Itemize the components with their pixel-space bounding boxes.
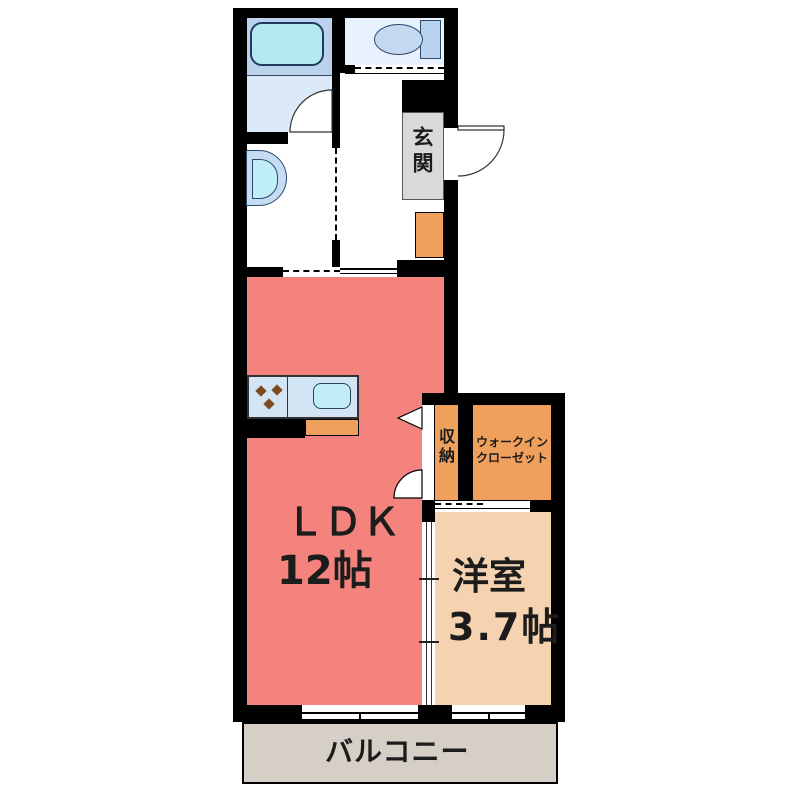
walk-in-closet-label: ウォークインクローゼット [474,434,550,466]
wall-top [233,8,458,18]
western-balcony-window [452,705,525,722]
wall-closet-top [422,393,565,405]
ldk-size-label: 12帖 [277,551,373,591]
wall-toilet-bottom-stub [345,65,355,74]
storage-door-gap [422,405,435,500]
balcony-label: バルコニー [325,738,469,766]
wall-closet-bottom-left-stub [422,500,435,522]
western-room-label: 洋室 [452,558,526,595]
washroom-ldk-dash [283,270,340,272]
ldk-balcony-window [302,705,418,722]
wall-right-upper [444,8,458,128]
closet-door-dash [435,503,483,505]
wall-right-mid [444,180,458,272]
kitchen-counter [247,375,359,419]
wall-ldk-top-left [233,267,283,277]
toilet-icon [374,24,423,55]
stove-dot-1 [255,385,266,396]
wall-kitchen-stub [247,418,305,438]
toilet-sliding-door [355,65,444,74]
hall-ldk-opening [340,267,397,277]
closet-door-line [435,508,530,509]
wall-left [233,8,247,722]
wall-bottom-seg2 [418,705,452,722]
ldk-western-sliding-door [423,522,435,705]
partition-tick1 [419,578,439,580]
stove-dot-2 [271,384,282,395]
changing-room [247,75,332,132]
partition-rail1 [426,522,427,705]
storage-label: 収納 [437,428,453,466]
ldk-label: ＬＤＫ [286,503,400,541]
wall-ldk-top-right [397,260,444,277]
wall-above-entrance [402,80,444,112]
wall-bottom-seg1 [233,705,302,722]
shoe-cabinet [415,212,444,258]
western-room-size-label: 3.7帖 [448,608,561,646]
partition-tick2 [419,641,439,643]
entrance-label: 玄関 [411,126,432,178]
washroom-sliding-door-dash [335,148,337,240]
bathtub-icon [250,22,324,66]
wall-bath-toilet [332,18,345,73]
wall-storage-wic-divider [458,405,473,500]
wall-ldk-right [444,272,458,393]
toilet-sliding-door-dash [355,67,444,69]
wall-closet-bottom-right [530,500,565,512]
western-window-tick [488,712,490,722]
toilet-tank [420,20,441,59]
kitchen-sink-icon [313,383,351,409]
kitchen-counter-return [305,419,359,436]
floor-plan: ＬＤＫ 12帖 洋室 3.7帖 収納 ウォークインクローゼット 玄関 バルコニー [0,0,800,800]
entry-door-leaf [458,126,504,130]
wall-washroom-hall-upper [332,73,340,148]
wall-closet-right [551,393,565,722]
wall-bottom-seg3 [525,705,565,722]
stove-dot-3 [263,398,274,409]
washroom-sliding-door [332,148,340,240]
counter-divider [287,377,288,417]
closet-sliding-door [435,500,530,512]
wall-changing-bottom [247,132,288,144]
hall-ldk-line2 [340,273,397,274]
washbasin-bowl [252,159,278,199]
entrance-door-gap [444,128,458,180]
partition-rail2 [431,522,432,705]
hall-ldk-line1 [340,268,397,270]
washroom-ldk-sliding-door [283,267,340,277]
ldk-window-tick [359,712,361,722]
entry-door-swing [458,130,504,176]
